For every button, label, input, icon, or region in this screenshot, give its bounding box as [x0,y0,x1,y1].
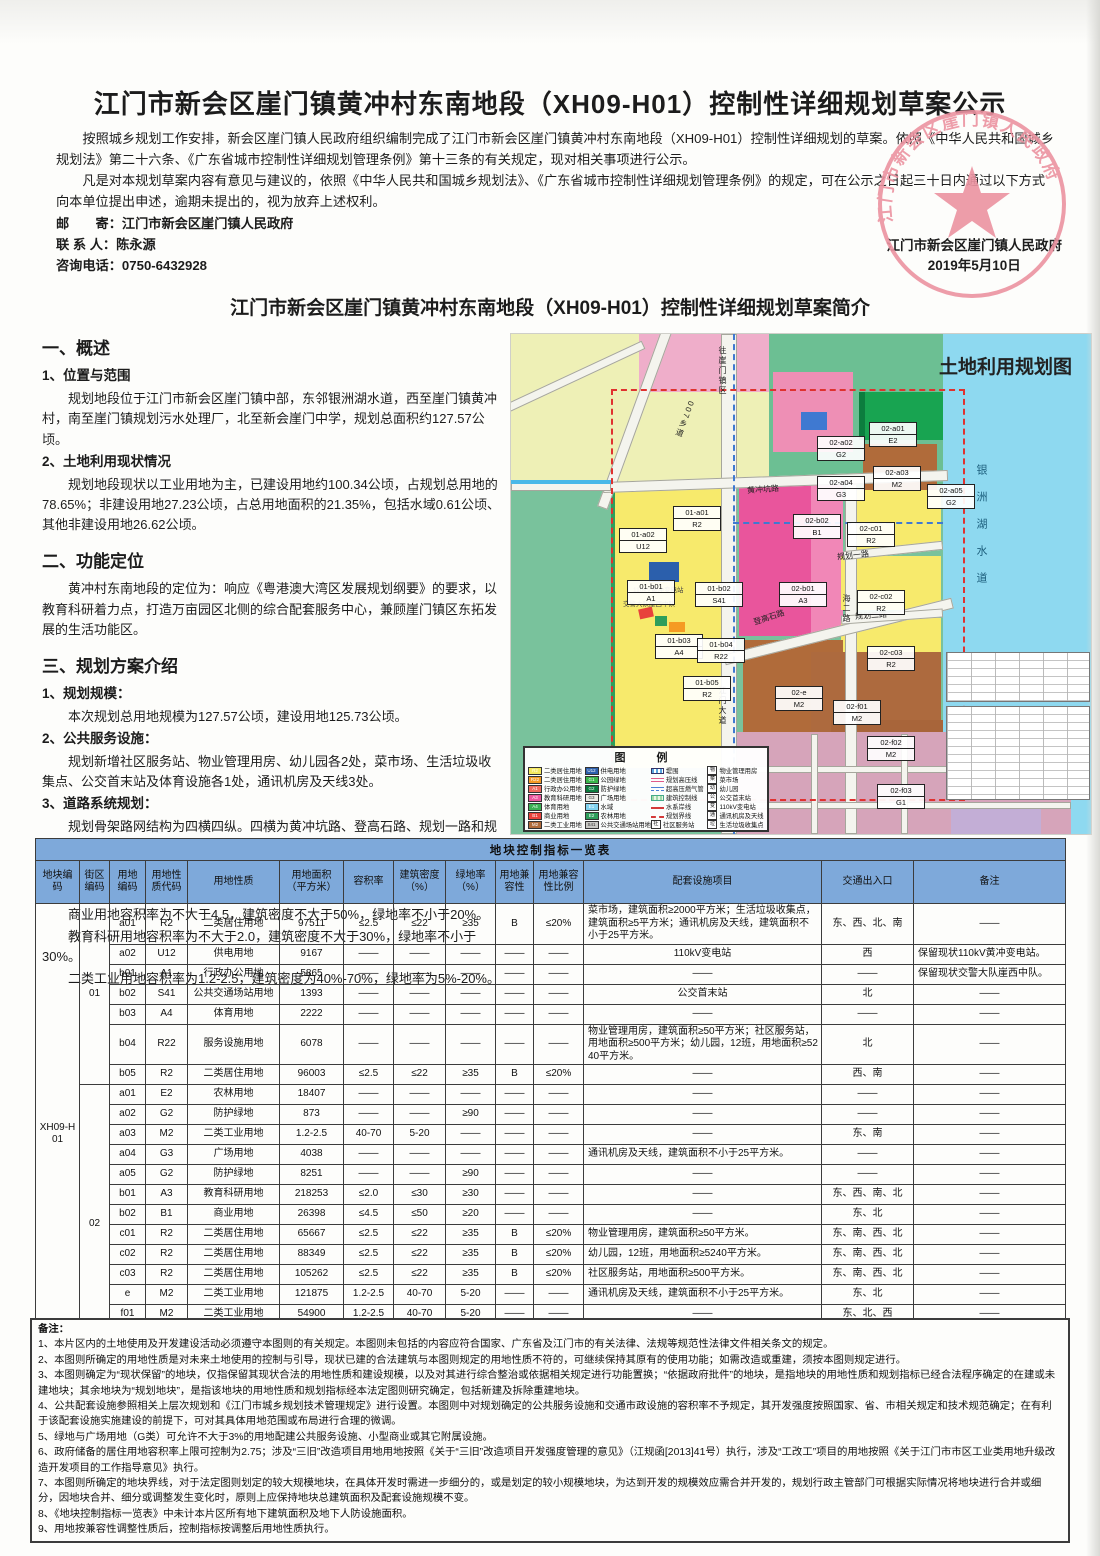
parcel-type: A4 [656,647,702,658]
legend-item-label: 教育科研用地 [544,793,582,802]
legend-item-label: 二类居住用地 [544,766,582,775]
parcel-code: 01-a02 [620,529,666,541]
legend-symbol-icon [651,768,664,774]
parcel-code: 02-b01 [780,583,826,595]
table-row: a02U12供电用地9167——————————110kV变电站西保留现状110… [36,944,1066,964]
table-cell: —— [534,1285,584,1305]
table-cell: —— [914,1265,1066,1285]
legend-item: 通通讯机房及天线 [707,811,764,820]
table-cell: b01 [110,964,146,984]
table-cell: —— [446,1085,496,1105]
table-cell: c03 [110,1265,146,1285]
table-cell: —— [914,1024,1066,1065]
parcel-type: R2 [848,535,894,546]
legend-item-label: 公交首末站 [719,793,750,802]
parcel-type: A3 [780,595,826,606]
legend-item-label: 通讯机房及天线 [719,811,763,820]
map-parcel-label: 02-eM2 [775,686,823,711]
table-cell: 东、西、北、南 [822,904,914,945]
map-parcel-label: 02-a03M2 [873,466,921,491]
table-cell: —— [914,984,1066,1004]
table-row: XH09-H0101a01R2二类居住用地97511≤2.5≤22≥35B≤20… [36,904,1066,945]
table-cell: R22 [146,1024,188,1065]
table-cell: —— [496,1105,534,1125]
section-2-text: 黄冲村东南地段的定位为：响应《粤港澳大湾区发展规划纲要》的要求，以教育科研着力点… [42,579,504,639]
table-cell: A3 [146,1185,188,1205]
table-cell: —— [496,1165,534,1185]
table-cell: B [496,904,534,945]
map-parcel-label: 01-a01R2 [673,506,721,531]
note-line: 9、用地按兼容性调整性质后，控制指标按调整后用地性质执行。 [38,1522,1062,1537]
legend-item-label: 菜市场 [719,775,738,784]
table-title-row: 地块控制指标一览表 [36,839,1066,861]
legend-symbol-icon [651,787,664,791]
table-cell: 110kV变电站 [584,944,822,964]
map-mini-table-1 [946,652,1090,702]
table-cell: —— [584,1105,822,1125]
legend-symbol-icon: 社 [651,820,661,829]
table-cell: a02 [110,1105,146,1125]
table-cell: 二类居住用地 [188,904,280,945]
table-cell: 教育科研用地 [188,1185,280,1205]
table-cell: 二类居住用地 [188,1065,280,1085]
table-header-cell: 用地性质 [188,861,280,904]
table-cell: —— [496,964,534,984]
legend-item-label: 农林用地 [601,811,626,820]
table-cell: ≤2.5 [344,1245,394,1265]
parcel-type: R2 [674,519,720,530]
parcel-code: 02-e [776,687,822,699]
legend-item-label: 公共交通场站用地 [601,820,651,829]
legend-facility-icon: 通 [707,811,717,820]
parcel-code: 01-b01 [628,581,674,593]
table-cell: —— [584,1185,822,1205]
legend-color-chip: E1 [585,803,599,811]
section-1-2-heading: 2、土地利用现状情况 [42,452,504,473]
legend-item-label: 堤围 [666,766,679,775]
table-cell: —— [822,1085,914,1105]
table-cell: 65667 [280,1225,344,1245]
note-line: 1、本片区内的土地使用及开发建设活动必须遵守本图则的有关规定。本图则未包括的内容… [38,1337,1062,1352]
parcel-type: R2 [868,659,914,670]
table-row: a04G3广场用地4038——————————通讯机房及天线，建筑面积不小于25… [36,1145,1066,1165]
table-cell: ≥35 [446,904,496,945]
table-cell: M2 [146,1285,188,1305]
table-cell: A4 [146,1004,188,1024]
parcel-type: G1 [878,797,924,808]
parcel-code: 02-a04 [818,477,864,489]
map-title: 土地利用规划图 [939,352,1072,379]
table-cell: ≤20% [534,904,584,945]
parcel-code: 01-b04 [698,639,744,651]
map-parcel-label: 02-c02R2 [857,590,905,615]
table-cell: 5-20 [394,1125,446,1145]
table-cell: 保留现状110kV黄冲变电站。 [914,944,1066,964]
table-cell: 二类居住用地 [188,1245,280,1265]
table-cell: —— [914,1085,1066,1105]
table-cell: —— [584,964,822,984]
table-cell: 西、南 [822,1065,914,1085]
parcel-type: A1 [628,593,674,604]
legend-symbol-icon [651,807,664,809]
table-cell: —— [446,1145,496,1165]
table-cell: ≤22 [394,1065,446,1085]
legend-item: 规划界线 [651,811,708,820]
table-cell: ≥30 [446,1185,496,1205]
map-legend: 图 例 R2二类居住用地R22二类居住用地A1行政办公用地A3教育科研用地A4体… [523,746,769,832]
table-cell: 防护绿地 [188,1105,280,1125]
section-3-1-heading: 1、规划规模： [42,684,504,705]
table-cell: 行政办公用地 [188,964,280,984]
legend-item: M2二类工业用地 [528,820,585,829]
intro-paragraph-1: 按照城乡规划工作安排，新会区崖门镇人民政府组织编制完成了江门市新会区崖门镇黄冲村… [56,128,1056,170]
table-cell: 保留现状交警大队崖西中队。 [914,964,1066,984]
map-waterline [511,480,611,484]
table-cell: 物业管理用房，建筑面积≥50平方米；社区服务站，用地面积≥500平方米；幼儿园，… [584,1024,822,1065]
legend-item: 堤围 [651,766,708,775]
table-cell: 东、南、西、北 [822,1245,914,1265]
table-cell: —— [394,1004,446,1024]
table-cell: —— [822,1004,914,1024]
intro-paragraph-2: 凡是对本规划草案内容有意见与建议的，依照《中华人民共和国城乡规划法》、《广东省城… [56,170,1056,212]
table-row: b02S41公共交通场站用地1393——————————公交首末站北—— [36,984,1066,1004]
table-row: eM2二类工业用地1218751.2-2.540-705-20————通讯机房及… [36,1285,1066,1305]
parcel-type: M2 [834,713,880,724]
table-cell: 5865 [280,964,344,984]
table-cell: R2 [146,1265,188,1285]
table-cell: —— [584,1085,822,1105]
parcel-type: M2 [868,749,914,760]
map-parcel-label: 02-a04G3 [817,476,865,501]
table-cell: 东、北 [822,1285,914,1305]
table-cell: R2 [146,904,188,945]
table-cell: 幼儿园，12班，用地面积≥5240平方米。 [584,1245,822,1265]
legend-item-label: 水域 [601,802,614,811]
table-cell: 东、西、南、北 [822,1185,914,1205]
block-code-cell: XH09-H01 [36,904,80,1365]
table-header-cell: 容积率 [344,861,394,904]
signature-org: 江门市新会区崖门镇人民政府 [887,236,1063,256]
parcel-code: 02-b02 [794,515,840,527]
table-header-cell: 地块编码 [36,861,80,904]
parcel-code: 02-a05 [928,485,974,497]
table-cell: 东、北 [822,1205,914,1225]
table-row: a02G2防护绿地873————≥90—————————— [36,1105,1066,1125]
legend-facility-icon: 垃 [707,820,717,829]
table-cell: —— [534,984,584,1004]
section-1-2-text: 规划地段现状以工业用地为主，已建设用地约100.34公顷，占规划总用地的78.6… [42,475,504,535]
table-cell: —— [914,1245,1066,1265]
legend-item: 水系岸线 [651,802,708,811]
legend-item: G1公园绿地 [585,775,651,784]
table-header-cell: 用地面积 （平方米） [280,861,344,904]
legend-item-label: 水系岸线 [666,802,691,811]
table-cell: 18407 [280,1085,344,1105]
parcel-type: G2 [818,449,864,460]
legend-color-chip: E2 [585,812,599,820]
legend-color-chip: A1 [528,785,542,793]
legend-item-label: 体育用地 [544,802,569,811]
parcel-type: B1 [794,527,840,538]
table-cell: —— [394,944,446,964]
table-cell: —— [584,1205,822,1225]
table-cell: —— [822,1145,914,1165]
table-cell: 通讯机房及天线，建筑面积不小于25平方米。 [584,1145,822,1165]
table-cell: 2222 [280,1004,344,1024]
legend-item: 公公交首末站 [707,793,764,802]
notes-list: 1、本片区内的土地使用及开发建设活动必须遵守本图则的有关规定。本图则未包括的内容… [38,1337,1062,1537]
table-cell: —— [534,1145,584,1165]
table-cell: 9167 [280,944,344,964]
legend-facility-icon: 幼 [707,784,717,793]
table-cell: ≤20% [534,1225,584,1245]
table-cell: B [496,1065,534,1085]
table-cell: —— [446,964,496,984]
section-3-3-heading: 3、道路系统规划： [42,794,504,815]
table-cell: —— [534,1004,584,1024]
table-cell: —— [534,944,584,964]
map-parcel-label: 01-a02U12 [619,528,667,553]
legend-symbol-icon [651,816,664,818]
legend-item-label: 物业管理用房 [719,766,757,775]
table-cell: A1 [146,964,188,984]
parcel-type: S41 [696,595,742,606]
parcel-code: 01-b05 [684,677,730,689]
parcel-type: E2 [870,435,916,446]
table-cell: —— [394,1145,446,1165]
table-cell: e [110,1285,146,1305]
table-cell: ≤22 [394,904,446,945]
table-cell: —— [914,1004,1066,1024]
table-cell: —— [496,1145,534,1165]
legend-column-3: 堤围规划高压线超高压燃气管建筑控制线水系岸线规划界线社社区服务站 [651,766,708,829]
table-cell: —— [822,964,914,984]
table-cell: —— [534,1185,584,1205]
table-cell: —— [394,964,446,984]
table-cell: ≤22 [394,1245,446,1265]
legend-item-label: 二类居住用地 [544,775,582,784]
table-cell: M2 [146,1125,188,1145]
parcel-code: 02-f03 [878,785,924,797]
table-cell: —— [344,1024,394,1065]
parcel-type: R22 [698,651,744,662]
legend-color-chip: G1 [585,776,599,784]
table-header-cell: 街区 编码 [80,861,110,904]
table-header-cell: 用地兼容 性比例 [534,861,584,904]
table-cell: —— [584,1165,822,1185]
section-1-heading: 一、概述 [42,336,504,362]
table-cell: —— [344,1145,394,1165]
table-cell: 1.2-2.5 [344,1285,394,1305]
table-cell: 218253 [280,1185,344,1205]
table-cell: c01 [110,1225,146,1245]
table-cell: ≥90 [446,1105,496,1125]
map-parcel-label: 02-b01A3 [779,582,827,607]
legend-item: R2二类居住用地 [528,766,585,775]
control-table: 地块控制指标一览表 地块编码街区 编码用地 编码用地性 质代码用地性质用地面积 … [35,838,1066,1365]
legend-item: 幼幼儿园 [707,784,764,793]
table-cell: a02 [110,944,146,964]
table-cell: —— [914,1065,1066,1085]
legend-item: 菜菜市场 [707,775,764,784]
legend-color-chip: A3 [528,794,542,802]
signature-date: 2019年5月10日 [887,256,1063,276]
legend-column-1: R2二类居住用地R22二类居住用地A1行政办公用地A3教育科研用地A4体育用地B… [528,766,585,829]
section-3-heading: 三、规划方案介绍 [42,654,504,680]
table-cell: b04 [110,1024,146,1065]
parcel-type: R2 [858,603,904,614]
section-1-1-text: 规划地段位于江门市新会区崖门镇中部，东邻银洲湖水道，西至崖门镇黄冲村，南至崖门镇… [42,389,504,449]
table-cell: —— [344,984,394,1004]
table-cell: E2 [146,1085,188,1105]
table-cell: ≥35 [446,1225,496,1245]
table-cell: —— [344,1105,394,1125]
note-line: 6、政府储备的居住用地容积率上限可控制为2.75；涉及“三旧”改造项目用地用地按… [38,1445,1062,1476]
table-cell: —— [914,1285,1066,1305]
legend-item-label: 二类工业用地 [544,820,582,829]
table-cell: B1 [146,1205,188,1225]
table-cell: 6078 [280,1024,344,1065]
note-line: 5、绿地与广场用地（G类）可允许不大于3%的用地配建公共服务设施、小型商业或其它… [38,1430,1062,1445]
table-cell: a05 [110,1165,146,1185]
table-cell: G2 [146,1165,188,1185]
table-cell: 873 [280,1105,344,1125]
legend-color-chip: U12 [585,767,599,775]
table-cell: b02 [110,1205,146,1225]
table-cell: 1393 [280,984,344,1004]
legend-title: 图 例 [528,749,764,765]
table-cell: ≤20% [534,1065,584,1085]
table-cell: 体育用地 [188,1004,280,1024]
table-cell: 二类居住用地 [188,1225,280,1245]
table-cell: —— [534,1085,584,1105]
section-3-2-text: 规划新增社区服务站、物业管理用房、幼儿园各2处，菜市场、生活垃圾收集点、公交首末… [42,752,504,792]
table-cell: —— [584,1065,822,1085]
legend-item-label: 社区服务站 [663,820,694,829]
table-cell: R2 [146,1225,188,1245]
table-cell: —— [496,1085,534,1105]
map-parcel-label: 02-a05G2 [927,484,975,509]
table-cell: 公共交通场站用地 [188,984,280,1004]
legend-item: 超高压燃气管 [651,784,708,793]
table-cell: —— [496,944,534,964]
legend-symbol-icon [651,795,664,801]
table-cell: 物业管理用房，建筑面积≥50平方米。 [584,1225,822,1245]
legend-item-label: 规划界线 [666,811,691,820]
table-cell: 北 [822,984,914,1004]
legend-facility-icon: 公 [707,793,717,802]
table-cell: —— [534,1165,584,1185]
table-cell: 公交首末站 [584,984,822,1004]
table-cell: 广场用地 [188,1145,280,1165]
legend-item-label: 生活垃圾收集点 [719,820,763,829]
table-cell: 通讯机房及天线，建筑面积不小于25平方米。 [584,1285,822,1305]
legend-item-label: 防护绿地 [601,784,626,793]
table-cell: G3 [146,1145,188,1165]
note-line: 2、本图则所确定的用地性质是对未来土地使用的控制与引导，现状已建的合法建筑与本图… [38,1353,1062,1368]
table-cell: U12 [146,944,188,964]
table-cell: ≤22 [394,1225,446,1245]
table-cell: ≤2.0 [344,1185,394,1205]
street-code-cell: 01 [80,904,110,1085]
legend-item: 垃生活垃圾收集点 [707,820,764,829]
map-parcel-label: 01-b02S41 [695,582,743,607]
table-cell: 菜市场，建筑面积≥2000平方米；生活垃圾收集点，建筑面积≥5平方米；通讯机房及… [584,904,822,945]
table-cell: 东、南 [822,1125,914,1145]
table-cell: 北 [822,1024,914,1065]
table-cell: ≤2.5 [344,1065,394,1085]
land-use-planning-map: 110kV黄冲变电站 交警大队崖西中队 土地利用规划图 银洲湖水道 图 例 R2… [510,333,1092,835]
table-cell: G2 [146,1105,188,1125]
table-cell: ≥35 [446,1065,496,1085]
table-cell: —— [914,1105,1066,1125]
table-cell: —— [534,1105,584,1125]
note-line: 8、《地块控制指标一览表》中未计本片区所有地下建筑面积及地下人防设施面积。 [38,1507,1062,1522]
page-title: 江门市新会区崖门镇黄冲村东南地段（XH09-H01）控制性详细规划草案公示 [0,84,1100,121]
table-cell: ≤2.5 [344,904,394,945]
brief-title: 江门市新会区崖门镇黄冲村东南地段（XH09-H01）控制性详细规划草案简介 [0,293,1100,320]
table-cell: ≤2.5 [344,1225,394,1245]
map-water-label: 银洲湖水道 [973,464,989,599]
legend-item: A3教育科研用地 [528,793,585,802]
table-cell: —— [344,944,394,964]
parcel-code: 01-a01 [674,507,720,519]
legend-item: 社社区服务站 [651,820,708,829]
parcel-code: 02-c03 [868,647,914,659]
table-cell: —— [446,1004,496,1024]
table-cell: —— [344,964,394,984]
table-cell: 4038 [280,1145,344,1165]
signature-block: 江门市新会区崖门镇人民政府 2019年5月10日 [887,236,1063,277]
table-header-cell: 建筑密度 （%） [394,861,446,904]
table-cell: ≤20% [534,1245,584,1265]
notes-label: 备注： [38,1324,69,1335]
table-cell: —— [914,1225,1066,1245]
legend-item: A4体育用地 [528,802,585,811]
table-cell: 97511 [280,904,344,945]
legend-item-label: 供电用地 [601,766,626,775]
table-cell: 农林用地 [188,1085,280,1105]
legend-color-chip: M2 [528,821,542,829]
table-cell: —— [534,964,584,984]
table-cell: —— [496,1125,534,1145]
table-cell: 商业用地 [188,1205,280,1225]
table-cell: B [496,1225,534,1245]
table-cell: 西 [822,944,914,964]
map-parcel-label: 02-f01M2 [833,700,881,725]
table-cell: ≤50 [394,1205,446,1225]
table-title: 地块控制指标一览表 [36,839,1066,861]
table-cell: —— [496,1285,534,1305]
table-cell: 8251 [280,1165,344,1185]
table-cell: 121875 [280,1285,344,1305]
table-cell: b02 [110,984,146,1004]
table-header-cell: 用地性 质代码 [146,861,188,904]
table-row: b01A1行政办公用地5865——————————————保留现状交警大队崖西中… [36,964,1066,984]
table-cell: 服务设施用地 [188,1024,280,1065]
table-cell: a01 [110,1085,146,1105]
table-cell: —— [344,1085,394,1105]
table-cell: a03 [110,1125,146,1145]
map-parcel-label: 02-a02G2 [817,436,865,461]
parcel-code: 02-f01 [834,701,880,713]
map-parcel-label: 02-c03R2 [867,646,915,671]
table-cell: 1.2-2.5 [280,1125,344,1145]
map-parcel-label: 01-b01A1 [627,580,675,605]
legend-item-label: 超高压燃气管 [666,784,704,793]
legend-item: 建筑控制线 [651,793,708,802]
legend-color-chip: B1 [528,812,542,820]
